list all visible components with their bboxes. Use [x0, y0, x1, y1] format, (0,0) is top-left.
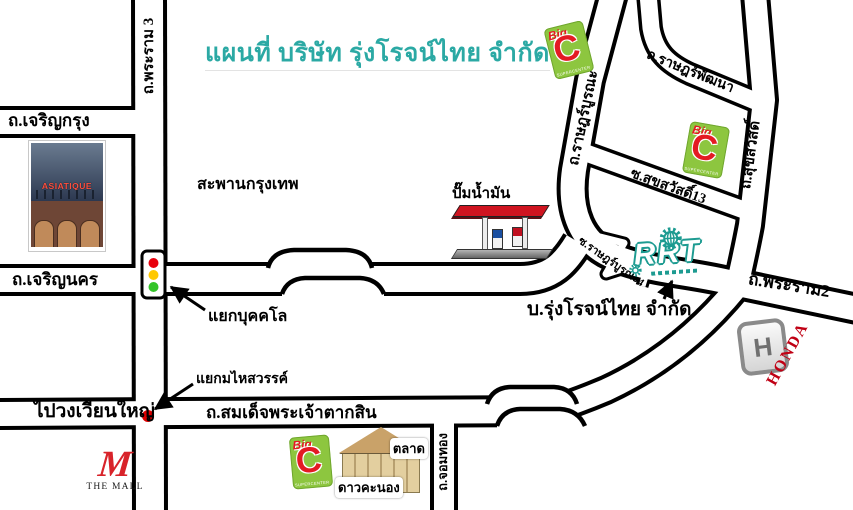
gas-pump-blue [492, 229, 503, 249]
bigc-c-text: C [294, 441, 323, 479]
arch-shape [57, 220, 77, 247]
market-name2-badge: ดาวคะนอง [335, 477, 403, 498]
market-name-badge: ตลาด [390, 438, 428, 459]
asiatique-building [31, 201, 103, 247]
arch-shape [80, 220, 100, 247]
honda-h-text: H [752, 330, 774, 363]
bigc-c-text: C [688, 128, 720, 168]
label-company-name: บ.รุ่งโรจน์ไทย จำกัด [527, 300, 691, 321]
label-bukkhalo-junction: แยกบุคคโล [208, 308, 287, 326]
road-label-charoen-krung: ถ.เจริญกรุง [8, 112, 90, 131]
label-krungthep-bridge: สะพานกรุงเทพ [197, 176, 298, 194]
asiatique-sky: ASIATIQUE [31, 143, 103, 201]
road-label-rama3: ถ.พระราม 3 [141, 18, 158, 94]
bigc-logo-daokhanong: Big C SUPERCENTER [289, 434, 333, 489]
gas-station-image: ปั๊มน้ำมัน [448, 186, 552, 260]
gas-base [451, 249, 553, 259]
label-to-wongwian-yai: ไปวงเวียนใหญ่ [34, 402, 155, 423]
gas-pillar [482, 217, 488, 251]
arch-shape [34, 220, 54, 247]
traffic-light-icon [142, 251, 165, 298]
gear-icon [658, 226, 684, 252]
road-label-chom-thong: ถ.จอมทอง [436, 433, 450, 491]
gas-pump-red [512, 227, 523, 247]
road-label-charoen-nakhon: ถ.เจริญนคร [12, 271, 98, 290]
label-mahaisawan-junction: แยกมไหสวรรค์ [196, 372, 288, 387]
map-canvas: ASIATIQUE Big C SUPERCENTER Big C SUPERC… [0, 0, 853, 510]
asiatique-photo: ASIATIQUE [28, 140, 106, 252]
asiatique-sign-text: ASIATIQUE [42, 181, 92, 201]
market-image: ตลาด ดาวคะนอง [333, 427, 428, 498]
the-mall-m-mark: M [82, 448, 147, 481]
road-label-taksin: ถ.สมเด็จพระเจ้าตากสิน [206, 404, 377, 423]
gas-station-label: ปั๊มน้ำมัน [452, 186, 510, 203]
the-mall-logo: M THE MALL [84, 448, 146, 492]
gas-canopy [452, 205, 549, 217]
bigc-c-text: C [550, 28, 584, 69]
company-logo-rrt: RRT [633, 235, 719, 277]
map-title: แผนที่ บริษัท รุ่งโรจน์ไทย จำกัด [205, 40, 550, 71]
